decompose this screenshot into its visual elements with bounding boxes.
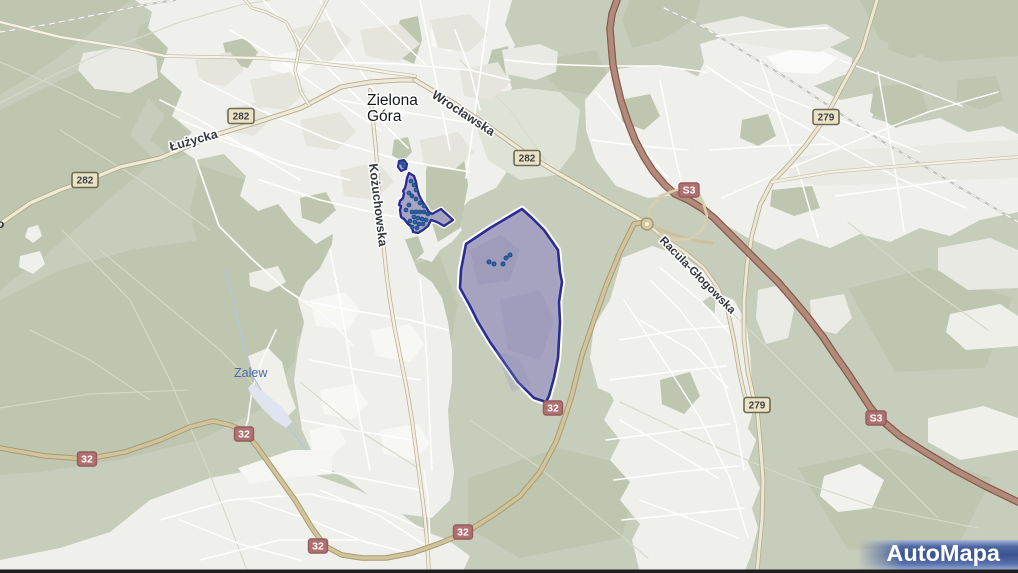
svg-text:Góra: Góra [367,108,402,125]
svg-text:S3: S3 [870,413,883,425]
svg-text:279: 279 [818,113,835,124]
svg-text:32: 32 [547,403,559,415]
svg-text:279: 279 [749,401,766,412]
svg-text:S3: S3 [683,185,696,197]
svg-text:Zalew: Zalew [234,366,268,380]
svg-text:282: 282 [519,154,536,165]
svg-text:32: 32 [238,429,250,441]
svg-text:282: 282 [77,176,94,187]
svg-text:32: 32 [457,527,469,539]
svg-text:32: 32 [81,454,93,466]
svg-text:282: 282 [233,112,250,123]
svg-text:Zielona: Zielona [367,92,418,109]
svg-text:o: o [0,217,4,231]
svg-text:32: 32 [312,541,324,553]
svg-text:AutoMapa: AutoMapa [886,540,1001,566]
